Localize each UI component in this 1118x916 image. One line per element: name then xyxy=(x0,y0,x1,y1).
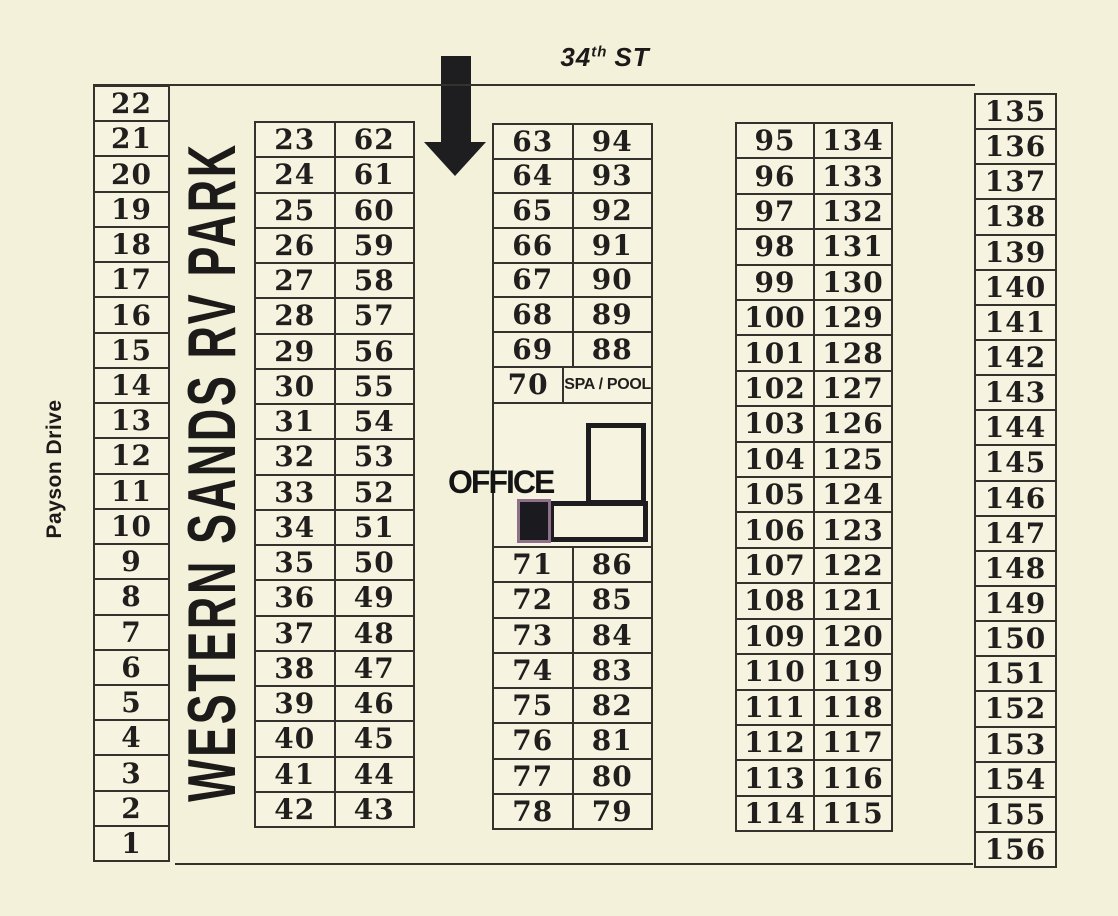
lot-cell: 32 xyxy=(256,440,334,473)
lot-cell: 140 xyxy=(976,271,1055,304)
lot-row: 32 53 xyxy=(256,438,413,473)
lot-cell: 90 xyxy=(572,264,652,297)
lot-cell: 89 xyxy=(572,298,652,331)
lot-cell: 71 xyxy=(494,548,572,581)
lot-column-right: 135 136 137 138 139 140 141 142 143 144 … xyxy=(974,93,1057,868)
lot-cell: 4 xyxy=(95,721,168,754)
lot-cell: 125 xyxy=(813,443,891,476)
lot-cell: 74 xyxy=(494,654,572,687)
lot-cell: 94 xyxy=(572,125,652,158)
lot-cell: 41 xyxy=(256,758,334,791)
lot-cell: 68 xyxy=(494,298,572,331)
lot-row: 151 xyxy=(976,655,1055,690)
lot-cell: 112 xyxy=(737,726,813,759)
lot-cell: 64 xyxy=(494,160,572,193)
lot-row: 34 51 xyxy=(256,509,413,544)
lot-row: 27 58 xyxy=(256,262,413,297)
lot-row: 23 62 xyxy=(256,123,413,156)
lot-row: 136 xyxy=(976,128,1055,163)
lot-cell: 39 xyxy=(256,687,334,720)
rv-park-site-map: 34thST Payson Drive WESTERN SANDS RV PAR… xyxy=(0,0,1118,916)
lot-cell: 36 xyxy=(256,581,334,614)
lot-row: 10 xyxy=(95,508,168,543)
lot-cell: 83 xyxy=(572,654,652,687)
lot-column-left: 22 21 20 19 18 17 16 15 14 13 12 11 xyxy=(93,85,170,862)
lot-cell: 70 xyxy=(494,368,562,402)
lot-cell: 29 xyxy=(256,335,334,368)
lot-cell: 49 xyxy=(334,581,414,614)
lot-cell: 109 xyxy=(737,620,813,653)
lot-cell: 78 xyxy=(494,795,572,828)
lot-row: 33 52 xyxy=(256,474,413,509)
lot-row: 147 xyxy=(976,515,1055,550)
lot-row: 35 50 xyxy=(256,544,413,579)
lot-cell: 24 xyxy=(256,158,334,191)
lot-cell: 63 xyxy=(494,125,572,158)
lot-row: 145 xyxy=(976,444,1055,479)
lot-cell: 18 xyxy=(95,228,168,261)
lot-column-2: 23 62 24 61 25 60 26 59 27 58 28 57 29 5… xyxy=(254,121,415,828)
lot-cell: 88 xyxy=(572,333,652,366)
lot-cell: 142 xyxy=(976,341,1055,374)
lot-row: 22 xyxy=(95,87,168,120)
lot-row: 42 43 xyxy=(256,791,413,826)
lot-cell: 11 xyxy=(95,475,168,508)
lot-row: 112 117 xyxy=(737,724,891,759)
lot-cell: 21 xyxy=(95,122,168,155)
lot-cell: 19 xyxy=(95,193,168,226)
lot-row: 110 119 xyxy=(737,653,891,688)
lot-row: 141 xyxy=(976,304,1055,339)
lot-row: 28 57 xyxy=(256,297,413,332)
lot-cell: 144 xyxy=(976,411,1055,444)
lot-cell: 130 xyxy=(813,266,891,299)
lot-cell: 136 xyxy=(976,130,1055,163)
lot-cell: 6 xyxy=(95,651,168,684)
lot-cell: 27 xyxy=(256,264,334,297)
lot-cell: 5 xyxy=(95,686,168,719)
lot-cell: 134 xyxy=(813,124,891,157)
lot-rows: 135 136 137 138 139 140 141 142 143 144 … xyxy=(976,95,1055,866)
lot-row: 65 92 xyxy=(494,192,651,227)
lot-cell: 108 xyxy=(737,584,813,617)
lot-row: 111 118 xyxy=(737,689,891,724)
lot-cell: 115 xyxy=(813,797,891,830)
lot-cell: 123 xyxy=(813,513,891,546)
lot-cell: 118 xyxy=(813,691,891,724)
lot-cell: 79 xyxy=(572,795,652,828)
lot-cell: 131 xyxy=(813,230,891,263)
lot-cell: 135 xyxy=(976,95,1055,128)
lot-cell: 105 xyxy=(737,478,813,511)
lot-row: 104 125 xyxy=(737,441,891,476)
lot-cell: 146 xyxy=(976,482,1055,515)
lot-cell: 28 xyxy=(256,299,334,332)
street-34th-label: 34thST xyxy=(500,42,710,73)
lot-cell: 120 xyxy=(813,620,891,653)
lot-cell: 154 xyxy=(976,763,1055,796)
lot-row: 64 93 xyxy=(494,158,651,193)
lot-row: 26 59 xyxy=(256,227,413,262)
lot-row: 9 xyxy=(95,543,168,578)
lot-cell: 31 xyxy=(256,405,334,438)
lot-row: 21 xyxy=(95,120,168,155)
lot-cell: 2 xyxy=(95,792,168,825)
lot-cell: 99 xyxy=(737,266,813,299)
lot-cell: 100 xyxy=(737,301,813,334)
lot-row: 20 xyxy=(95,155,168,190)
lot-row: 41 44 xyxy=(256,756,413,791)
lot-cell: 133 xyxy=(813,159,891,192)
lot-row: 63 94 xyxy=(494,125,651,158)
office-building-outline-wide xyxy=(549,501,648,542)
lot-row: 149 xyxy=(976,585,1055,620)
lot-cell: 34 xyxy=(256,511,334,544)
lot-cell: 13 xyxy=(95,404,168,437)
lot-cell: 122 xyxy=(813,549,891,582)
lot-row: 152 xyxy=(976,690,1055,725)
lot-row: 154 xyxy=(976,761,1055,796)
lot-row: 67 90 xyxy=(494,262,651,297)
lot-cell: 20 xyxy=(95,157,168,190)
lot-row: 150 xyxy=(976,620,1055,655)
lot-row: 72 85 xyxy=(494,581,651,616)
lot-row: 8 xyxy=(95,578,168,613)
lot-row: 74 83 xyxy=(494,652,651,687)
lot-cell: 66 xyxy=(494,229,572,262)
lot-cell: 121 xyxy=(813,584,891,617)
lot-cell: 51 xyxy=(334,511,414,544)
lot-row: 135 xyxy=(976,95,1055,128)
lot-rows: 23 62 24 61 25 60 26 59 27 58 28 57 29 5… xyxy=(256,123,413,826)
lot-cell: 44 xyxy=(334,758,414,791)
lot-row: 3 xyxy=(95,754,168,789)
lot-row: 69 88 xyxy=(494,331,651,366)
lot-cell: 30 xyxy=(256,370,334,403)
lot-cell: 116 xyxy=(813,761,891,794)
lot-cell: 150 xyxy=(976,622,1055,655)
lot-row: 75 82 xyxy=(494,687,651,722)
entrance-arrow-icon xyxy=(420,54,490,179)
lot-cell: 52 xyxy=(334,476,414,509)
lot-cell: 12 xyxy=(95,439,168,472)
lot-row: 107 122 xyxy=(737,547,891,582)
lot-cell: 55 xyxy=(334,370,414,403)
lot-row: 106 123 xyxy=(737,511,891,546)
lot-cell: 38 xyxy=(256,652,334,685)
lot-cell: 61 xyxy=(334,158,414,191)
lot-row: 76 81 xyxy=(494,722,651,757)
lot-row: 101 128 xyxy=(737,334,891,369)
lot-cell: 25 xyxy=(256,194,334,227)
lot-row: 39 46 xyxy=(256,685,413,720)
lot-row: 113 116 xyxy=(737,759,891,794)
lot-rows: 22 21 20 19 18 17 16 15 14 13 12 11 xyxy=(95,87,168,860)
lot-cell: 7 xyxy=(95,616,168,649)
lot-cell: 139 xyxy=(976,236,1055,269)
lot-cell: 102 xyxy=(737,372,813,405)
lot-cell: 33 xyxy=(256,476,334,509)
lot-cell: 85 xyxy=(572,583,652,616)
street-34th-suffix: ST xyxy=(614,42,649,72)
lot-row: 4 xyxy=(95,719,168,754)
lot-cell: 14 xyxy=(95,369,168,402)
lot-row: 78 79 xyxy=(494,793,651,828)
spa-row: 70 SPA / POOL xyxy=(494,366,651,402)
lot-row: 40 45 xyxy=(256,720,413,755)
lot-cell: 60 xyxy=(334,194,414,227)
lot-row: 137 xyxy=(976,163,1055,198)
lot-cell: 107 xyxy=(737,549,813,582)
lot-row: 13 xyxy=(95,402,168,437)
lot-row: 15 xyxy=(95,332,168,367)
lot-row: 1 xyxy=(95,825,168,860)
lot-row: 24 61 xyxy=(256,156,413,191)
lot-cell: 93 xyxy=(572,160,652,193)
lot-cell: 96 xyxy=(737,159,813,192)
lot-cell: 110 xyxy=(737,655,813,688)
lot-cell: 45 xyxy=(334,722,414,755)
lot-row: 16 xyxy=(95,296,168,331)
lot-cell: 103 xyxy=(737,407,813,440)
lot-cell: 113 xyxy=(737,761,813,794)
lot-rows: 95 134 96 133 97 132 98 131 99 130 100 1… xyxy=(737,124,891,830)
lot-cell: 145 xyxy=(976,446,1055,479)
lot-cell: 95 xyxy=(737,124,813,157)
lot-cell: 40 xyxy=(256,722,334,755)
lot-row: 95 134 xyxy=(737,124,891,157)
lot-cell: 48 xyxy=(334,617,414,650)
lot-cell: 47 xyxy=(334,652,414,685)
lot-row: 114 115 xyxy=(737,795,891,830)
lot-cell: 97 xyxy=(737,195,813,228)
lot-cell: 59 xyxy=(334,229,414,262)
lot-cell: 9 xyxy=(95,545,168,578)
lot-row: 139 xyxy=(976,234,1055,269)
office-area: OFFICE xyxy=(492,402,653,548)
lot-row: 73 84 xyxy=(494,617,651,652)
lot-cell: 155 xyxy=(976,798,1055,831)
office-building-outline-tall xyxy=(586,423,646,505)
lot-cell: 69 xyxy=(494,333,572,366)
lot-cell: 53 xyxy=(334,440,414,473)
lot-cell: 35 xyxy=(256,546,334,579)
lot-cell: 10 xyxy=(95,510,168,543)
lot-cell: 124 xyxy=(813,478,891,511)
lot-row: 143 xyxy=(976,374,1055,409)
lot-cell: 77 xyxy=(494,760,572,793)
lot-row: 103 126 xyxy=(737,405,891,440)
lot-cell: 26 xyxy=(256,229,334,262)
lot-cell: 15 xyxy=(95,334,168,367)
lot-row: 25 60 xyxy=(256,192,413,227)
lot-cell: 153 xyxy=(976,728,1055,761)
lot-cell: 56 xyxy=(334,335,414,368)
lot-cell: 104 xyxy=(737,443,813,476)
lot-cell: 65 xyxy=(494,194,572,227)
lot-row: 12 xyxy=(95,437,168,472)
lot-row: 96 133 xyxy=(737,157,891,192)
lot-cell: 151 xyxy=(976,657,1055,690)
lot-column-3-top: 63 94 64 93 65 92 66 91 67 90 68 89 69 8… xyxy=(492,123,653,404)
lot-cell: 119 xyxy=(813,655,891,688)
lot-row: 19 xyxy=(95,191,168,226)
lot-row: 99 130 xyxy=(737,264,891,299)
lot-row: 108 121 xyxy=(737,582,891,617)
lot-cell: 138 xyxy=(976,200,1055,233)
lot-cell: 1 xyxy=(95,827,168,860)
lot-cell: 22 xyxy=(95,87,168,120)
lot-cell: 82 xyxy=(572,689,652,722)
lot-row: 102 127 xyxy=(737,370,891,405)
lot-row: 156 xyxy=(976,831,1055,866)
lot-row: 38 47 xyxy=(256,650,413,685)
office-building-filled-square xyxy=(517,499,551,543)
lot-row: 31 54 xyxy=(256,403,413,438)
lot-row: 2 xyxy=(95,790,168,825)
lot-cell: 62 xyxy=(334,123,414,156)
lot-row: 29 56 xyxy=(256,333,413,368)
lot-cell: 72 xyxy=(494,583,572,616)
lot-row: 71 86 xyxy=(494,548,651,581)
lot-cell: 147 xyxy=(976,517,1055,550)
lot-cell: 46 xyxy=(334,687,414,720)
lot-cell: 106 xyxy=(737,513,813,546)
lot-row: 77 80 xyxy=(494,758,651,793)
lot-cell: 73 xyxy=(494,619,572,652)
lot-row: 142 xyxy=(976,339,1055,374)
lot-cell: 17 xyxy=(95,263,168,296)
lot-row: 30 55 xyxy=(256,368,413,403)
lot-row: 14 xyxy=(95,367,168,402)
lot-cell: 141 xyxy=(976,306,1055,339)
lot-row: 144 xyxy=(976,409,1055,444)
lot-cell: 23 xyxy=(256,123,334,156)
lot-cell: 127 xyxy=(813,372,891,405)
lot-cell: 81 xyxy=(572,724,652,757)
lot-row: 105 124 xyxy=(737,476,891,511)
lot-row: 138 xyxy=(976,198,1055,233)
lot-row: 153 xyxy=(976,726,1055,761)
lot-row: 148 xyxy=(976,550,1055,585)
lot-cell: 101 xyxy=(737,336,813,369)
park-name: WESTERN SANDS RV PARK xyxy=(173,142,251,802)
lot-cell: 117 xyxy=(813,726,891,759)
lot-cell: 86 xyxy=(572,548,652,581)
lot-cell: 152 xyxy=(976,692,1055,725)
lot-cell: 91 xyxy=(572,229,652,262)
lot-cell: 16 xyxy=(95,298,168,331)
lot-cell: 8 xyxy=(95,580,168,613)
lot-cell: 129 xyxy=(813,301,891,334)
lot-row: 97 132 xyxy=(737,193,891,228)
lot-row: 140 xyxy=(976,269,1055,304)
lot-cell: 111 xyxy=(737,691,813,724)
lot-cell: 43 xyxy=(334,793,414,826)
lot-row: 66 91 xyxy=(494,227,651,262)
lot-cell: 128 xyxy=(813,336,891,369)
lot-row: 6 xyxy=(95,649,168,684)
lot-row: 100 129 xyxy=(737,299,891,334)
lot-cell: 98 xyxy=(737,230,813,263)
lot-cell: 148 xyxy=(976,552,1055,585)
lot-row: 146 xyxy=(976,480,1055,515)
lot-cell: 143 xyxy=(976,376,1055,409)
lot-cell: 42 xyxy=(256,793,334,826)
lot-cell: 149 xyxy=(976,587,1055,620)
lot-cell: 58 xyxy=(334,264,414,297)
lot-cell: 132 xyxy=(813,195,891,228)
lot-cell: 54 xyxy=(334,405,414,438)
lot-column-3-bottom: 71 86 72 85 73 84 74 83 75 82 76 81 77 8… xyxy=(492,546,653,830)
street-34th-ordinal: th xyxy=(591,43,607,60)
spa-pool-label: SPA / POOL xyxy=(562,368,651,402)
lot-cell: 92 xyxy=(572,194,652,227)
street-payson-label: Payson Drive xyxy=(43,399,67,538)
lot-cell: 57 xyxy=(334,299,414,332)
lot-cell: 137 xyxy=(976,165,1055,198)
lot-row: 17 xyxy=(95,261,168,296)
bottom-road-line xyxy=(175,863,973,865)
lot-row: 37 48 xyxy=(256,615,413,650)
lot-cell: 76 xyxy=(494,724,572,757)
lot-cell: 37 xyxy=(256,617,334,650)
lot-cell: 126 xyxy=(813,407,891,440)
lot-row: 11 xyxy=(95,473,168,508)
lot-row: 68 89 xyxy=(494,296,651,331)
lot-cell: 114 xyxy=(737,797,813,830)
lot-cell: 50 xyxy=(334,546,414,579)
lot-row: 109 120 xyxy=(737,618,891,653)
lot-rows: 63 94 64 93 65 92 66 91 67 90 68 89 69 8… xyxy=(494,125,651,366)
lot-cell: 75 xyxy=(494,689,572,722)
lot-row: 18 xyxy=(95,226,168,261)
lot-row: 98 131 xyxy=(737,228,891,263)
office-label: OFFICE xyxy=(448,466,553,498)
lot-cell: 84 xyxy=(572,619,652,652)
top-road-line xyxy=(93,84,975,86)
lot-row: 36 49 xyxy=(256,579,413,614)
lot-cell: 3 xyxy=(95,756,168,789)
lot-cell: 156 xyxy=(976,833,1055,866)
lot-row: 155 xyxy=(976,796,1055,831)
lot-rows: 71 86 72 85 73 84 74 83 75 82 76 81 77 8… xyxy=(494,548,651,828)
lot-column-4: 95 134 96 133 97 132 98 131 99 130 100 1… xyxy=(735,122,893,832)
lot-row: 7 xyxy=(95,614,168,649)
lot-cell: 80 xyxy=(572,760,652,793)
street-34th-number: 34 xyxy=(560,42,591,72)
lot-row: 5 xyxy=(95,684,168,719)
lot-cell: 67 xyxy=(494,264,572,297)
